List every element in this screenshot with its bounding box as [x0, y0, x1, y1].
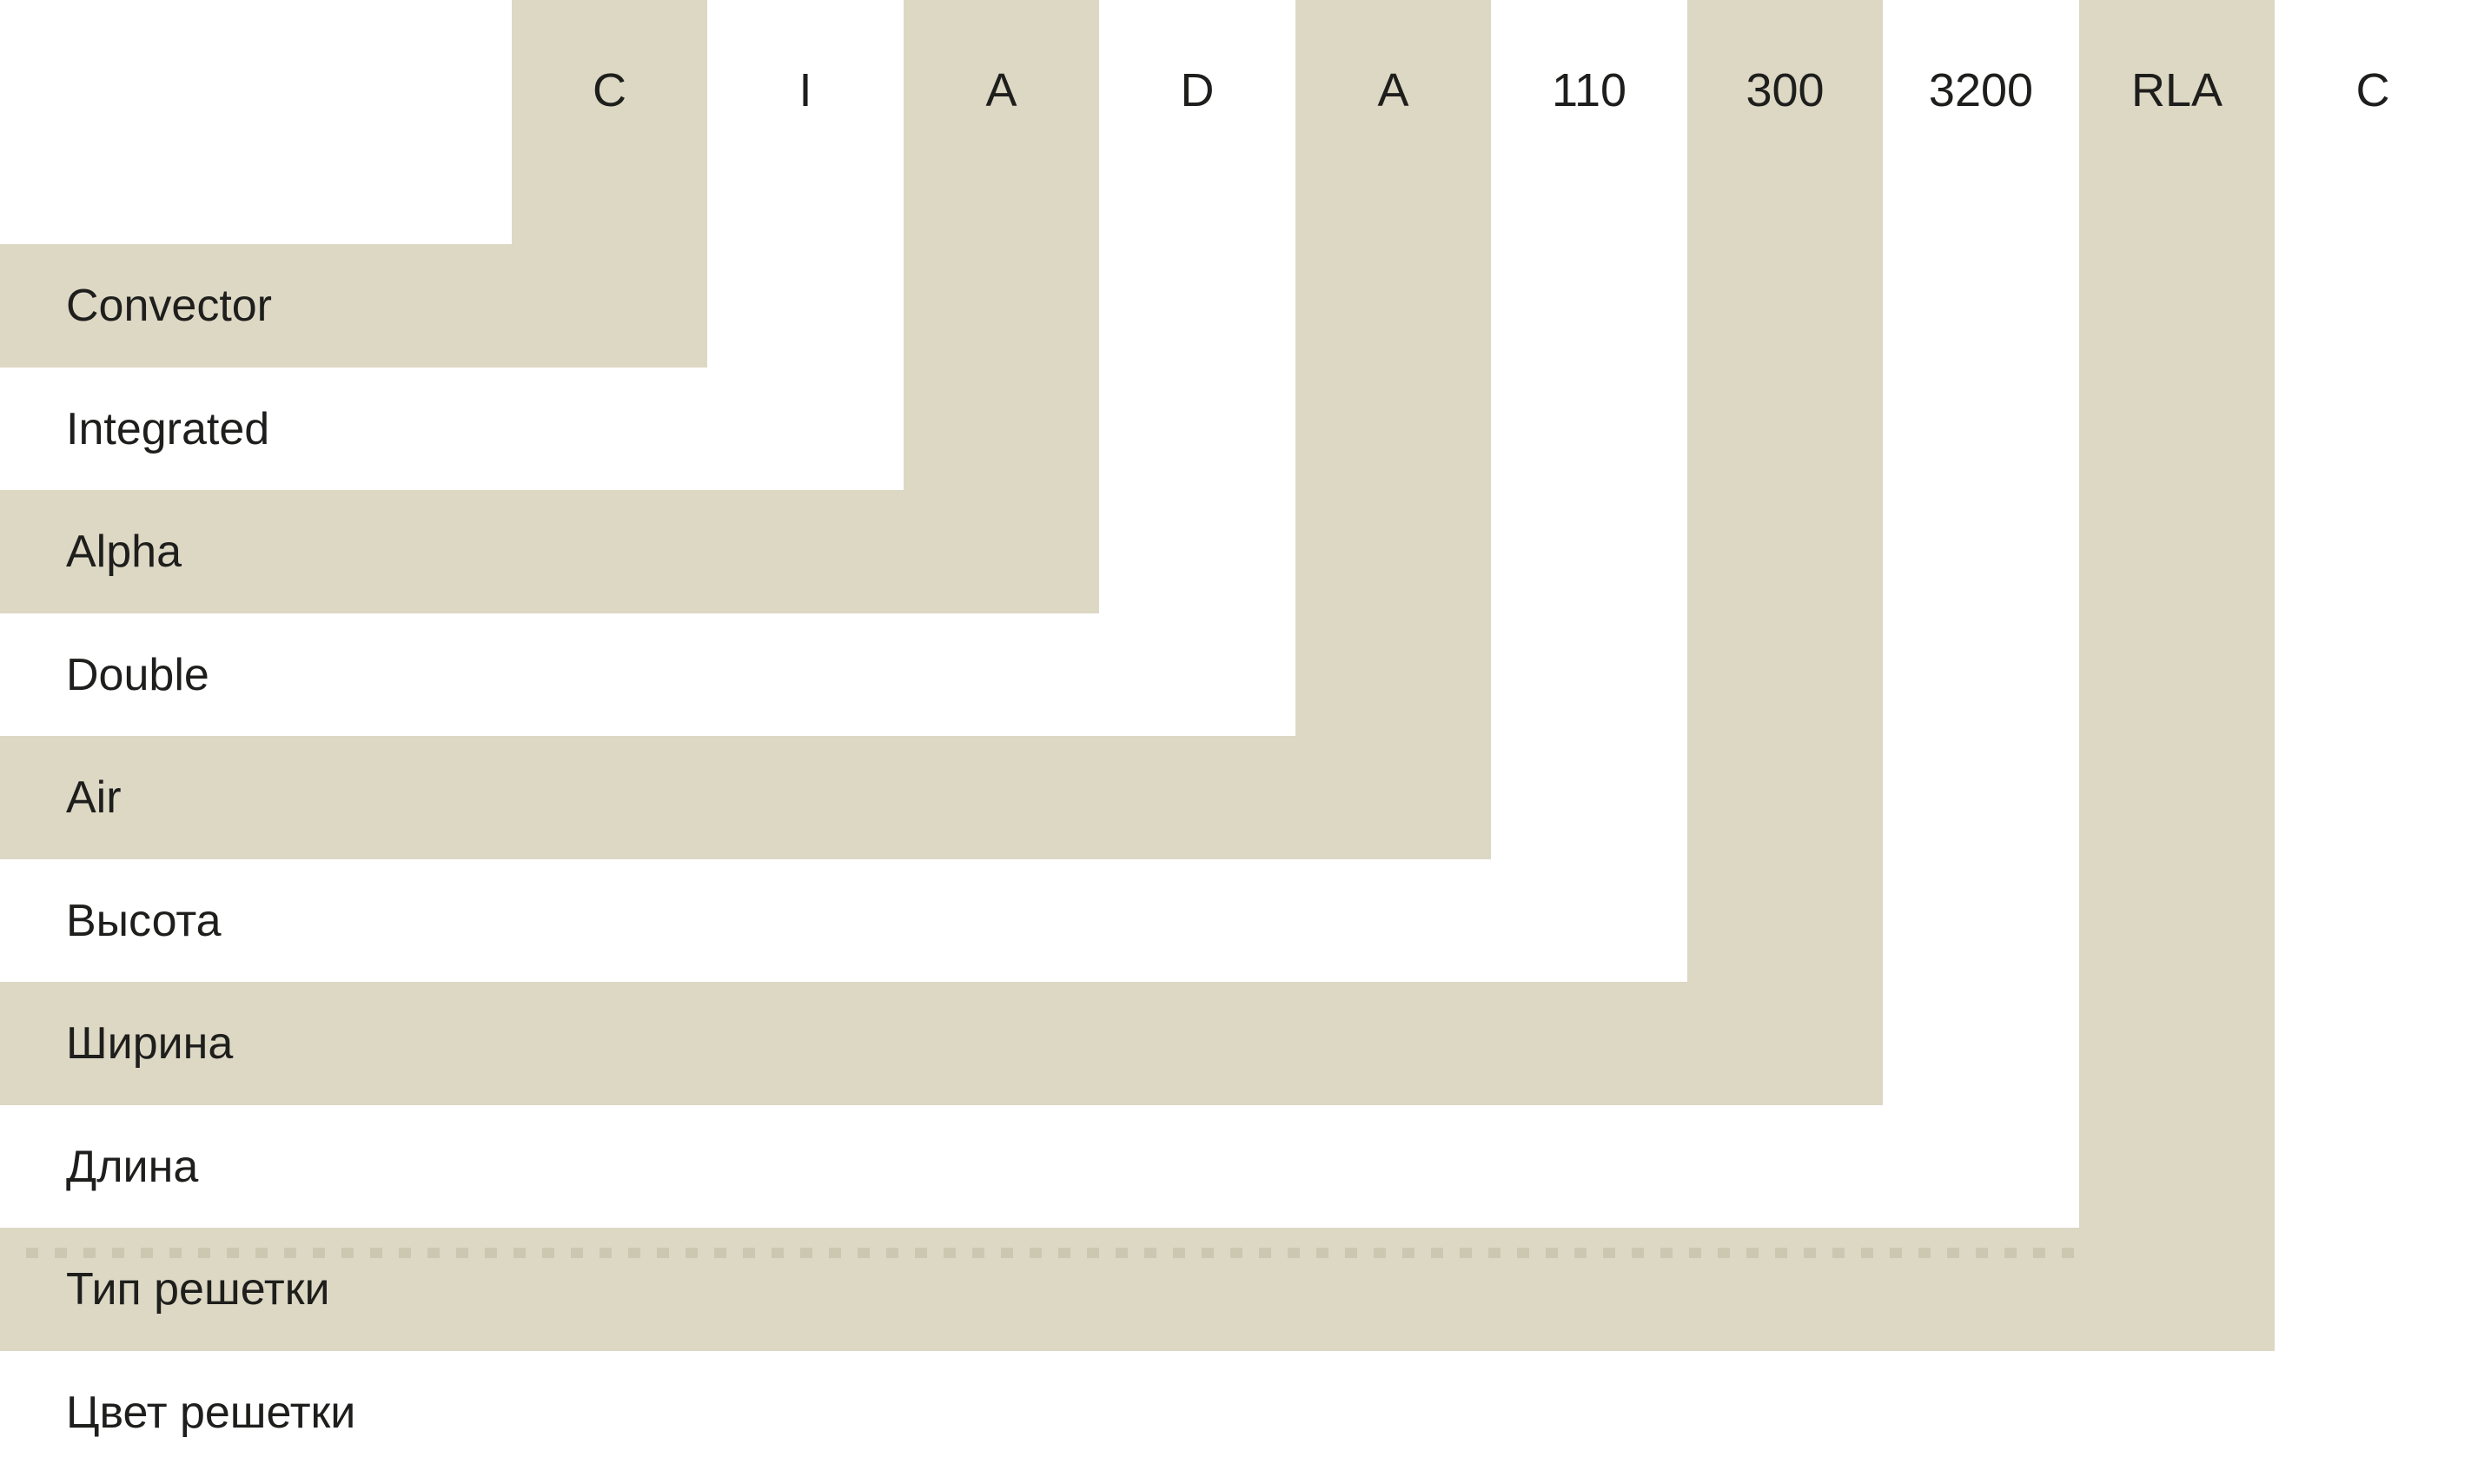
row-label-3: Alpha — [0, 490, 182, 613]
row-label-6: Высота — [0, 859, 222, 982]
row-band-6 — [0, 859, 1687, 982]
code-label-3: A — [904, 64, 1099, 116]
row-band-9 — [0, 1228, 2275, 1351]
code-label-6: 110 — [1491, 64, 1687, 116]
code-label-9: RLA — [2079, 64, 2275, 116]
code-label-4: D — [1099, 64, 1295, 116]
row-label-8: Длина — [0, 1105, 198, 1228]
row-label-10: Цвет решетки — [0, 1351, 355, 1474]
row-label-4: Double — [0, 613, 209, 736]
code-label-8: 3200 — [1883, 64, 2079, 116]
row-band-5 — [0, 736, 1491, 859]
row-label-7: Ширина — [0, 982, 233, 1105]
row-label-2: Integrated — [0, 368, 269, 490]
code-label-2: I — [707, 64, 904, 116]
code-label-5: A — [1295, 64, 1491, 116]
row-label-1: Convector — [0, 244, 272, 368]
row-label-5: Air — [0, 736, 122, 859]
row-label-9: Тип решетки — [0, 1228, 330, 1351]
column-band-6 — [1491, 0, 1687, 982]
column-band-8 — [1883, 0, 2079, 1228]
row-band-10 — [0, 1351, 2471, 1474]
column-band-5 — [1295, 0, 1491, 859]
model-code-diagram: C I A D A 110 300 3200 RLA C Convector I… — [0, 0, 2471, 1484]
code-label-10: C — [2275, 64, 2471, 116]
row-band-8 — [0, 1105, 2079, 1228]
code-label-7: 300 — [1687, 64, 1883, 116]
dotted-separator — [26, 1248, 2077, 1258]
column-band-7 — [1687, 0, 1883, 1105]
row-band-7 — [0, 982, 1883, 1105]
column-band-9 — [2079, 0, 2275, 1351]
code-label-1: C — [512, 64, 707, 116]
column-band-10 — [2275, 0, 2471, 1474]
